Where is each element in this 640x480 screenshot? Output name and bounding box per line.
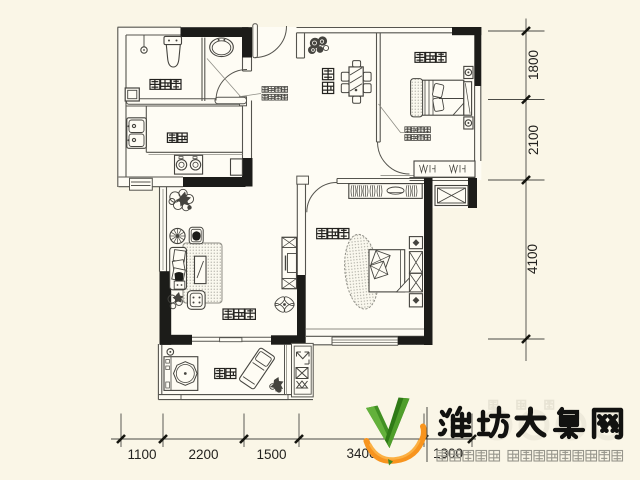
svg-text:4100: 4100	[525, 244, 540, 274]
svg-text:1500: 1500	[256, 447, 286, 462]
svg-text:1100: 1100	[127, 447, 156, 462]
svg-text:2200: 2200	[188, 447, 218, 462]
svg-text:2100: 2100	[526, 125, 541, 155]
svg-text:1800: 1800	[526, 50, 541, 80]
